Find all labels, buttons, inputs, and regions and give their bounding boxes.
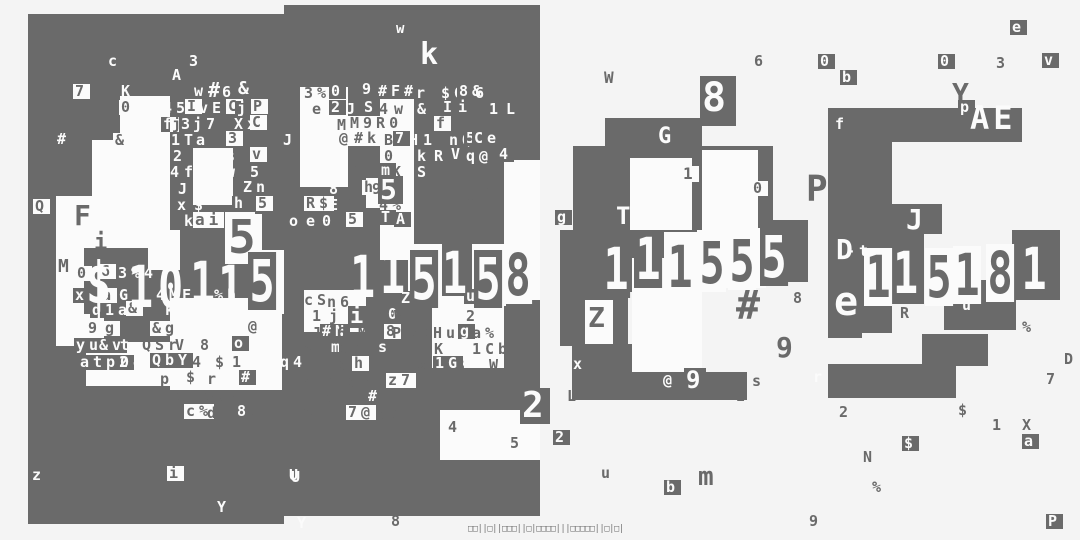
noise-char: J [283, 133, 296, 148]
noise-char: u [601, 466, 614, 481]
noise-char: z7 [386, 373, 416, 388]
noise-char: 8 [200, 338, 213, 353]
noise-char: 2 [329, 100, 346, 115]
noise-char: 04 [120, 355, 146, 370]
big-digit: $ [86, 254, 111, 312]
noise-char: 9 [360, 82, 377, 97]
medium-glyph: 1 [681, 166, 699, 182]
noise-char: Q [33, 199, 50, 214]
big-digit: 1 [128, 258, 153, 316]
big-digit: 5 [760, 228, 788, 286]
noise-char: 0 [938, 54, 955, 69]
noise-char: 0 [322, 214, 335, 229]
noise-char: u [321, 149, 334, 164]
noise-char: X [1022, 418, 1035, 433]
big-digit: 1 [350, 248, 375, 306]
noise-char: g [555, 210, 572, 225]
big-digit: 5 [248, 252, 276, 310]
noise-char: 5 [256, 196, 273, 211]
noise-char: $ [184, 370, 201, 385]
noise-char: 2 [839, 405, 852, 420]
noise-char: 0 [376, 407, 389, 422]
medium-glyph: T [616, 204, 634, 228]
medium-glyph: Z [586, 304, 611, 332]
big-digit: 1 [190, 254, 215, 312]
noise-char: p [160, 372, 173, 387]
noise-char: c [108, 54, 121, 69]
noise-char: q@ [466, 149, 492, 164]
noise-char: 5 [304, 375, 317, 390]
big-digit: 1 [953, 246, 981, 304]
noise-char: r [416, 86, 429, 101]
dark-blob [828, 328, 862, 338]
noise-char: 1 [992, 418, 1005, 433]
noise-char: R [434, 149, 447, 164]
noise-char: $ [958, 403, 971, 418]
noise-char: 7 [393, 131, 410, 146]
noise-char: % [872, 480, 885, 495]
noise-char: s [752, 374, 765, 389]
big-digit: 8 [504, 246, 532, 304]
big-digit: 1 [602, 240, 630, 298]
noise-char: 6 [475, 86, 488, 101]
noise-char: R [900, 306, 913, 321]
dark-blob [922, 334, 988, 366]
medium-glyph: M [58, 258, 73, 276]
noise-char: 0 [346, 375, 359, 390]
noise-char: i [167, 466, 184, 481]
noise-char: P [1046, 514, 1063, 529]
noise-char: d [207, 406, 220, 421]
noise-char: e [312, 102, 325, 117]
medium-glyph: G [480, 170, 502, 200]
noise-char: v [250, 147, 267, 162]
noise-char: 2 [171, 149, 188, 164]
noise-char: f [833, 117, 850, 132]
noise-char: 1 [392, 407, 405, 422]
medium-glyph: w [396, 22, 408, 36]
noise-char: #k [352, 131, 382, 146]
noise-char: j7 [193, 117, 219, 132]
big-digit: 1 [893, 244, 918, 302]
noise-char: a% [472, 326, 498, 341]
noise-char: QbY [150, 353, 193, 368]
medium-glyph: 9 [776, 334, 797, 362]
medium-glyph: 5 [378, 176, 403, 204]
noise-char: r [813, 370, 826, 385]
noise-char: s [226, 149, 239, 164]
big-digit: 1 [442, 244, 467, 302]
noise-char: J [178, 182, 191, 197]
medium-glyph: D [836, 236, 857, 264]
noise-char: 0 [337, 358, 350, 373]
noise-char: N [863, 450, 876, 465]
noise-char: P [392, 326, 405, 341]
noise-char: L [567, 389, 580, 404]
medium-glyph: AE [970, 102, 1017, 134]
noise-char: U [291, 470, 304, 485]
noise-char: 9 [466, 198, 479, 213]
noise-char: E [329, 198, 342, 213]
noise-char: e [1010, 20, 1027, 35]
noise-char: 9 [161, 182, 174, 197]
big-digit: 0 [158, 258, 183, 316]
noise-char: ai [193, 212, 224, 228]
noise-char: o [337, 149, 350, 164]
big-digit: 5 [925, 248, 953, 306]
big-digit: 5 [410, 250, 438, 308]
big-digit: 5 [698, 234, 726, 292]
noise-char: z [417, 358, 430, 373]
noise-char: x [573, 357, 586, 372]
noise-char: x [177, 198, 190, 213]
medium-glyph: 2 [520, 388, 550, 424]
noise-char: 2 [553, 430, 570, 445]
noise-char: f [184, 165, 197, 180]
big-digit: 1 [634, 230, 662, 288]
noise-char: vE [199, 101, 225, 116]
noise-char: $ [456, 358, 469, 373]
noise-char: g [103, 321, 120, 336]
noise-char: y [248, 406, 261, 421]
noise-char: 7 [219, 182, 232, 197]
noise-char: w [226, 165, 239, 180]
barcode-strip: □□||□||□□□||□|□□□□|||□□□□□||□|□| [468, 524, 624, 534]
noise-char: 3 [996, 56, 1009, 71]
noise-char: 5 [510, 436, 523, 451]
noise-char: H [409, 133, 422, 148]
noise-char: r [207, 372, 220, 387]
medium-glyph: m [698, 464, 718, 490]
noise-char: 5 [346, 212, 363, 227]
noise-char: P [251, 99, 268, 114]
medium-glyph: 8 [700, 78, 732, 118]
noise-char: V [449, 147, 466, 162]
medium-glyph: k [420, 40, 442, 70]
noise-char: n [375, 391, 388, 406]
noise-char: Zn [241, 180, 271, 195]
noise-char: t [120, 338, 133, 353]
noise-char: 0 [751, 181, 768, 196]
noise-char: o [289, 214, 302, 229]
noise-char: 0 [818, 54, 835, 69]
noise-char: 4 [497, 147, 514, 162]
noise-char: W [489, 358, 502, 373]
big-digit: 8 [986, 244, 1014, 302]
noise-char: 1T [171, 133, 197, 148]
noise-char: Y [217, 500, 230, 515]
big-digit: 5 [728, 232, 756, 290]
noise-char: Z [62, 321, 75, 336]
noise-char: 0 [329, 84, 346, 99]
noise-char: 0 [119, 100, 136, 115]
noise-char: @ [663, 373, 676, 388]
noise-char: @ [329, 375, 342, 390]
medium-glyph: S [704, 212, 719, 230]
noise-char: L [506, 102, 519, 117]
noise-char: 4 [163, 101, 176, 116]
noise-char: E [736, 389, 749, 404]
noise-char: D [1064, 352, 1077, 367]
big-digit: 1 [666, 238, 694, 296]
noise-char: %F [304, 407, 330, 422]
noise-char: 3 [189, 54, 202, 69]
noise-char: o [232, 336, 249, 351]
noise-char: q4 [280, 355, 306, 370]
noise-char: A [170, 68, 187, 83]
noise-char: a [196, 133, 209, 148]
noise-char: @ [246, 319, 263, 334]
noise-char: 9 [86, 321, 103, 336]
noise-captcha-canvas: c3A7Kw#6L&#&045IvECjPfj3j7XxCZ1Ta32sv4fw… [0, 0, 1080, 540]
noise-char: m [160, 406, 173, 421]
big-digit: 1 [218, 258, 243, 316]
big-digit: 1 [380, 244, 405, 302]
big-digit: 1 [864, 248, 892, 306]
noise-char: Y [385, 342, 398, 357]
noise-char: 9 [809, 514, 822, 529]
noise-char: f [434, 116, 451, 131]
noise-char: v [1042, 53, 1059, 68]
noise-char: Y [297, 516, 310, 531]
noise-char: #F# [376, 84, 419, 99]
medium-glyph: 9 [684, 368, 706, 392]
noise-char: Ce [472, 131, 502, 146]
noise-char: 1Cb [472, 342, 511, 357]
noise-char: 1 [489, 102, 502, 117]
medium-glyph: F [74, 202, 95, 230]
big-digit: 5 [474, 250, 502, 308]
noise-char: 8 [391, 514, 404, 529]
noise-char: 6 [754, 54, 767, 69]
noise-char: S [362, 100, 379, 115]
noise-char: # [57, 132, 70, 147]
noise-char: K [121, 84, 134, 99]
noise-char: A [394, 212, 411, 227]
noise-char: k [417, 149, 430, 164]
noise-char: 3% [304, 86, 330, 101]
noise-char: 1 [423, 133, 436, 148]
noise-char: S [417, 165, 430, 180]
noise-char: i [456, 100, 473, 115]
noise-char: 8 [793, 291, 806, 306]
noise-char: e [306, 214, 319, 229]
noise-char: 7 [1046, 372, 1059, 387]
noise-char: a [1022, 434, 1039, 449]
noise-char: $ [902, 436, 919, 451]
big-digit: 1 [1020, 240, 1048, 298]
medium-glyph: G [658, 126, 675, 148]
noise-char: 7 [73, 84, 90, 99]
noise-char: b [664, 480, 681, 495]
noise-char: h [352, 356, 369, 371]
medium-glyph: J [906, 206, 927, 234]
noise-char: & [236, 80, 255, 98]
noise-char: 4 [448, 420, 461, 435]
noise-char: &g [150, 321, 180, 336]
dark-blob [828, 364, 956, 398]
noise-char: 2 [322, 391, 335, 406]
noise-char: j [235, 101, 252, 116]
noise-char: 7@ [346, 405, 376, 420]
noise-char: W [604, 70, 618, 86]
dark-blob [605, 118, 702, 148]
noise-char: $ [215, 355, 228, 370]
noise-char: % [1022, 320, 1035, 335]
noise-char: 4 [170, 165, 183, 180]
noise-char: b [840, 70, 857, 85]
noise-char: z [32, 468, 45, 483]
noise-char: D [338, 342, 351, 357]
noise-char: s [304, 342, 317, 357]
noise-char: & [113, 133, 130, 148]
medium-glyph: P [806, 172, 832, 208]
noise-char: h [232, 196, 249, 211]
noise-char: Z [258, 117, 271, 132]
noise-char: # [239, 370, 256, 385]
noise-char: & [417, 102, 430, 117]
noise-char: 3 [226, 131, 243, 146]
medium-glyph: e [834, 282, 862, 322]
